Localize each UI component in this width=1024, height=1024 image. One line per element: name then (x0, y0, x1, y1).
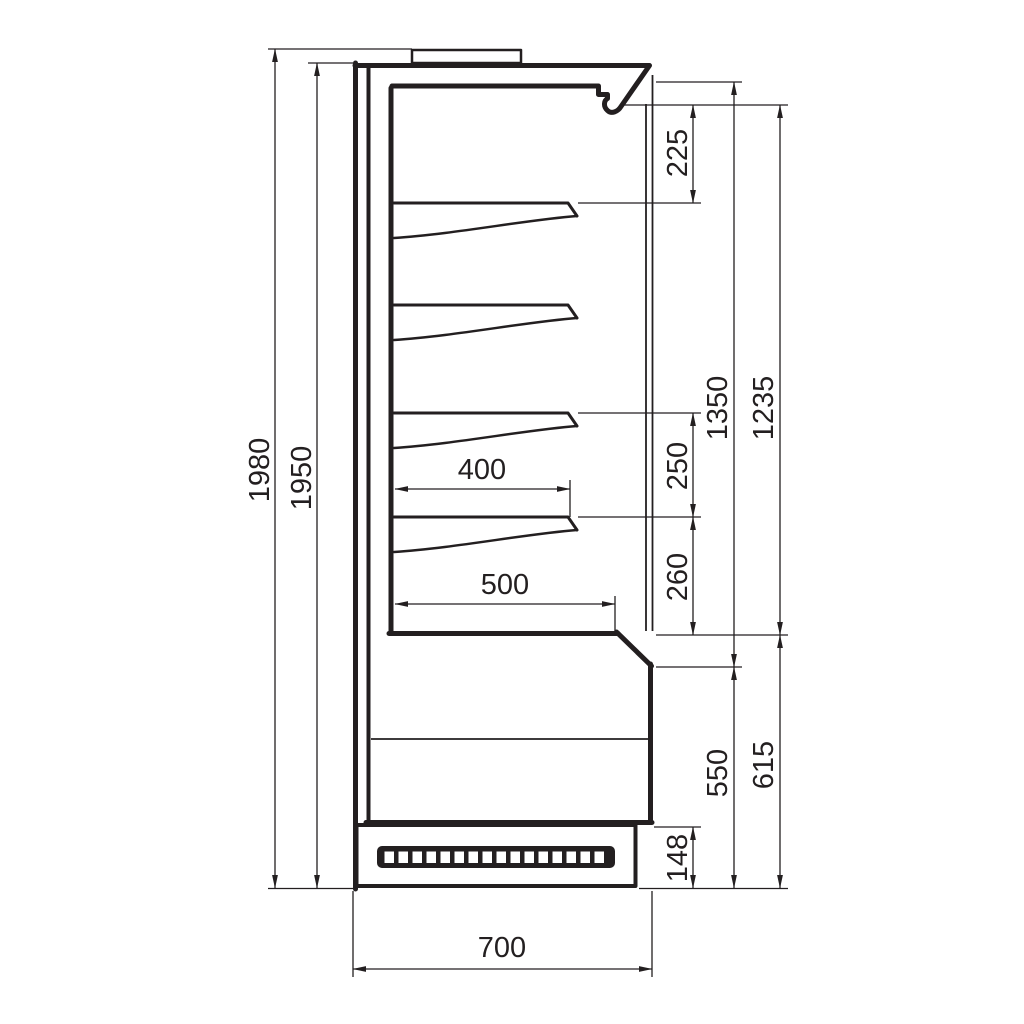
dim-shelf-depth: 400 (395, 454, 570, 489)
shelf-4 (394, 517, 577, 552)
dim-canopy-to-first-shelf: 225 (662, 105, 694, 203)
dim-label: 700 (478, 932, 526, 964)
shelf-2 (394, 305, 577, 340)
dim-interior-front-height: 1350 (702, 82, 734, 667)
dim-label: 500 (481, 569, 529, 601)
dim-label: 1235 (748, 376, 780, 441)
dim-shelf-spacing-upper: 250 (662, 413, 694, 517)
canopy-nozzle (355, 66, 650, 113)
cabinet-section-drawing: 1980 1950 225 250 260 1350 1235 550 (0, 0, 1024, 1024)
dim-label: 148 (662, 834, 694, 882)
shelf-1 (394, 203, 577, 238)
dim-overall-height: 1980 (244, 49, 276, 888)
dim-label: 1350 (702, 376, 734, 441)
dim-label: 400 (458, 454, 506, 486)
dim-label: 260 (662, 553, 694, 601)
dim-label: 550 (702, 749, 734, 797)
dim-lower-front-height: 550 (702, 667, 734, 888)
air-grille (377, 846, 615, 868)
dim-bottom-deck-depth: 500 (395, 569, 615, 604)
top-cap (412, 50, 521, 63)
dim-label: 615 (748, 741, 780, 789)
front-corner-cut (617, 632, 652, 666)
dim-label: 1980 (244, 438, 276, 503)
dim-shelf-zone-height: 1235 (748, 105, 780, 635)
dim-label: 225 (662, 129, 694, 177)
dim-lower-section-height: 615 (748, 635, 780, 888)
dim-label: 250 (662, 442, 694, 490)
dim-shelf-spacing-lower: 260 (662, 517, 694, 635)
dim-case-height: 1950 (286, 63, 318, 888)
shelf-3 (394, 413, 577, 448)
dim-label: 1950 (286, 446, 318, 511)
dim-overall-depth: 700 (353, 932, 652, 969)
dim-plinth-height: 148 (662, 827, 694, 888)
technical-drawing-page: 1980 1950 225 250 260 1350 1235 550 (0, 0, 1024, 1024)
